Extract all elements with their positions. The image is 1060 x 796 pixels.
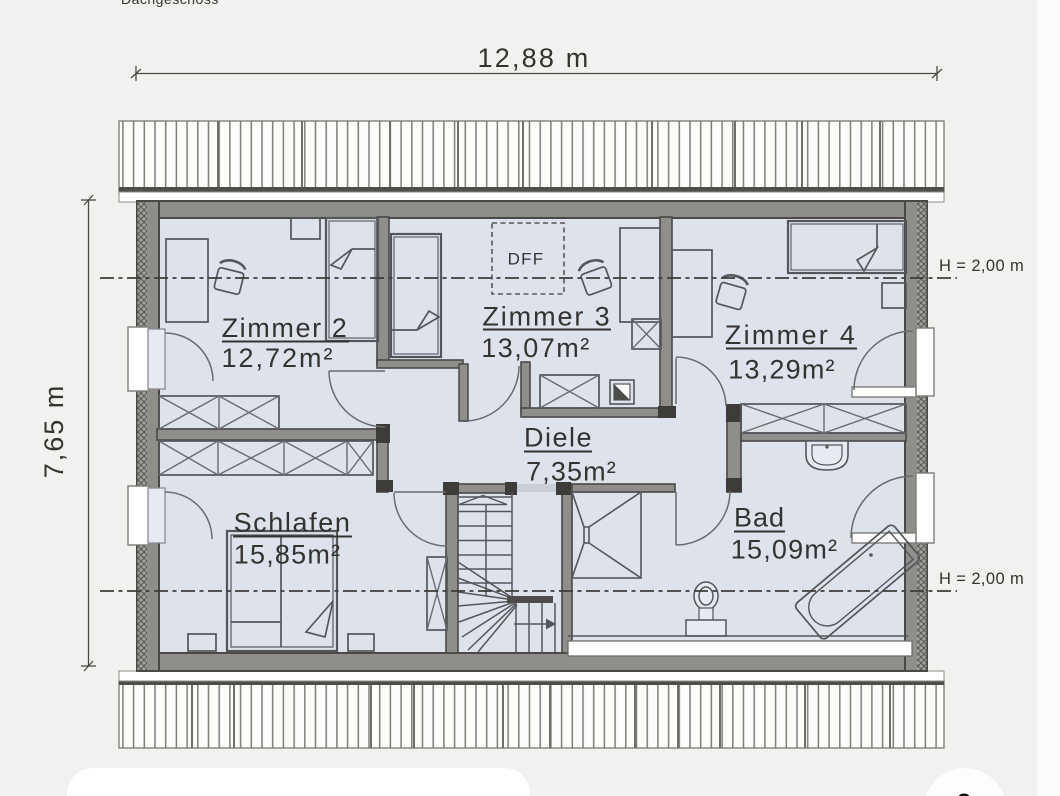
svg-text:15,09m²: 15,09m² xyxy=(731,535,838,565)
svg-text:15,85m²: 15,85m² xyxy=(234,540,341,570)
svg-text:Zimmer 3: Zimmer 3 xyxy=(482,302,611,332)
svg-text:Schlafen: Schlafen xyxy=(234,508,352,538)
svg-text:Zimmer 2: Zimmer 2 xyxy=(222,313,349,343)
svg-text:12,72m²: 12,72m² xyxy=(221,343,334,373)
svg-text:H = 2,00 m: H = 2,00 m xyxy=(939,257,1024,275)
svg-text:Diele: Diele xyxy=(524,423,593,453)
svg-text:13,29m²: 13,29m² xyxy=(728,355,835,385)
svg-text:Bad: Bad xyxy=(734,503,785,533)
svg-text:DFF: DFF xyxy=(508,250,545,269)
svg-text:12,88 m: 12,88 m xyxy=(478,43,591,73)
svg-text:13,07m²: 13,07m² xyxy=(481,333,591,363)
svg-text:Dachgeschoss: Dachgeschoss xyxy=(121,0,219,7)
svg-text:H = 2,00 m: H = 2,00 m xyxy=(939,570,1024,588)
svg-text:7,65 m: 7,65 m xyxy=(39,384,69,479)
svg-text:7,35m²: 7,35m² xyxy=(526,457,617,487)
svg-text:Zimmer 4: Zimmer 4 xyxy=(725,320,857,350)
